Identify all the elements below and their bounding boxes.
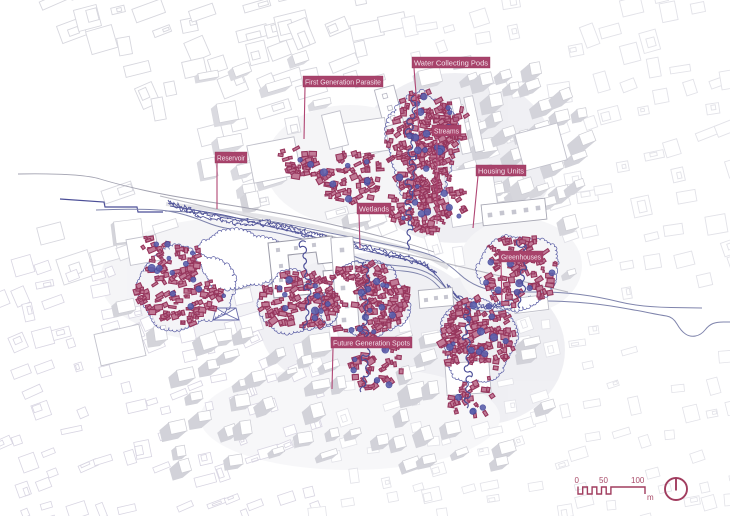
svg-text:50: 50 xyxy=(599,476,608,485)
svg-text:Greenhouses: Greenhouses xyxy=(501,252,541,261)
svg-text:100: 100 xyxy=(631,476,645,485)
svg-text:Housing Units: Housing Units xyxy=(478,166,524,175)
svg-text:Streams: Streams xyxy=(434,126,459,135)
svg-text:Future Generation Spots: Future Generation Spots xyxy=(333,338,410,347)
svg-text:0: 0 xyxy=(575,476,580,485)
svg-text:Reservoir: Reservoir xyxy=(217,153,246,162)
svg-text:First Generation Parasite: First Generation Parasite xyxy=(305,77,381,86)
svg-text:Water Collecting Pods: Water Collecting Pods xyxy=(414,58,488,67)
svg-text:m: m xyxy=(647,493,654,502)
svg-text:Wetlands: Wetlands xyxy=(359,204,389,213)
